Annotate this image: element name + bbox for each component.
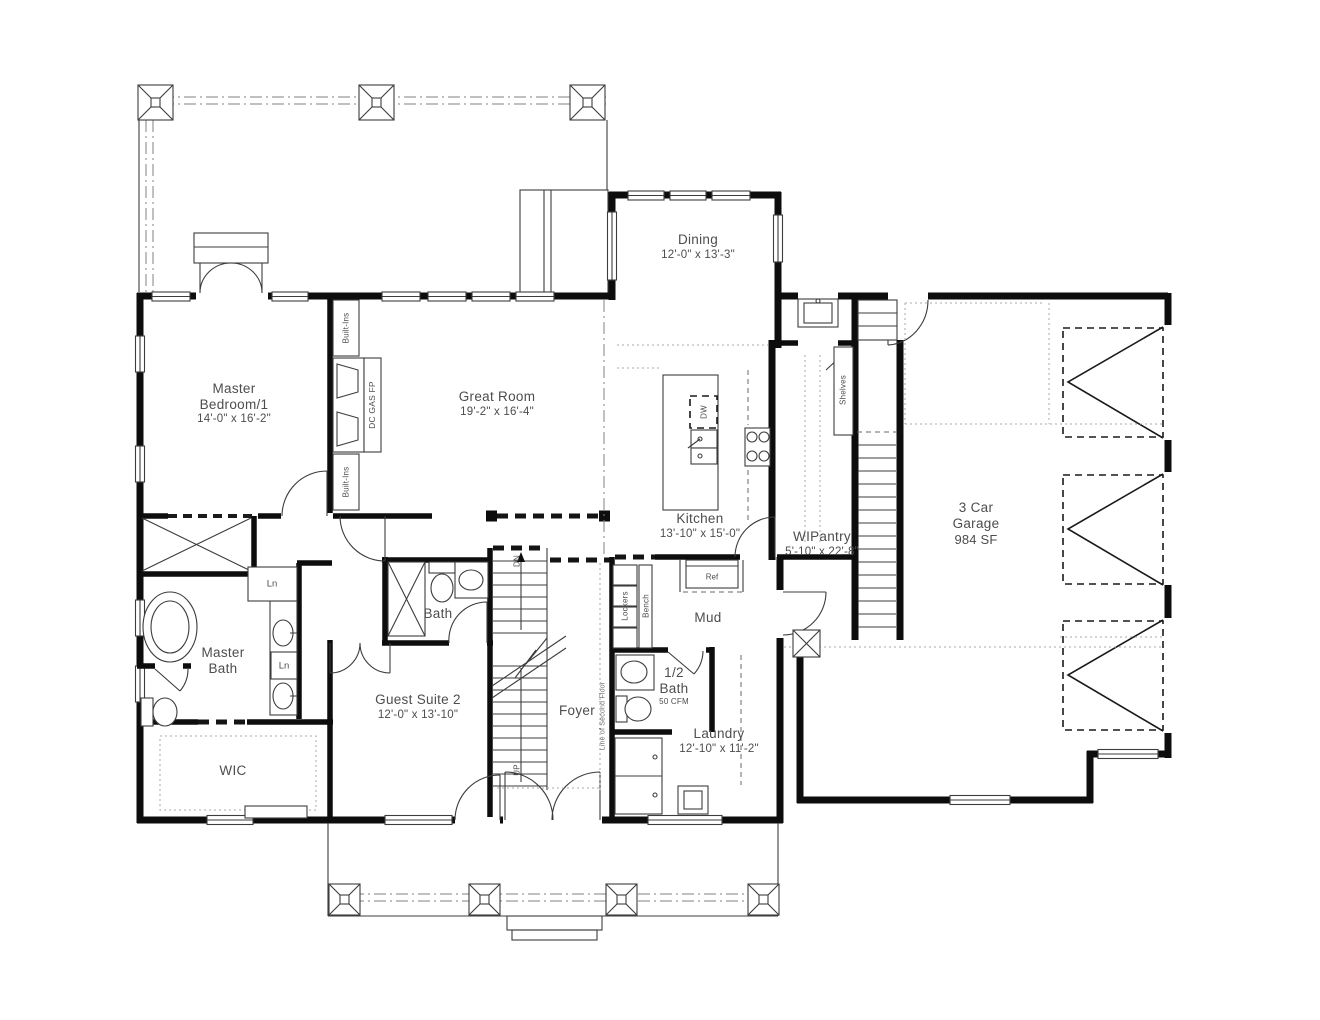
island-sink [688,430,717,464]
toilet [429,562,455,602]
room-label-garage: 3 Car Garage 984 SF [944,500,1008,547]
porch-chimney-structure [520,190,608,294]
window [628,191,664,200]
window [152,292,190,301]
master-patio-door [194,233,268,293]
window [428,292,466,301]
range-cooktop [745,428,770,466]
garage-overlay-lines [905,303,1163,637]
window [712,191,750,200]
butler-sink [798,299,838,327]
window [516,292,554,301]
room-dims: 14'-0" x 16'-2" [186,413,282,426]
room-dims: 19'-2" x 16'-4" [422,406,572,419]
room-label-half-bath: 1/2 Bath 50 CFM [653,665,695,707]
porch-column [469,884,500,915]
room-name: Kitchen [620,511,780,527]
sink [455,562,488,598]
room-dims: 5'-10" x 22'-8" [757,546,887,559]
front-porch [328,823,778,916]
porch-column [606,884,637,915]
window [648,816,722,825]
room-name: WIC [203,763,263,779]
room-label-master-bath: Master Bath [194,645,252,676]
window [472,292,510,301]
entry-door [455,772,600,820]
room-dims: 12'-0" x 13'-3" [618,249,778,262]
hall-shelving [858,300,897,340]
window [670,191,706,200]
porch-column [748,884,779,915]
shower [388,562,425,636]
room-label-great-room: Great Room 19'-2" x 16'-4" [422,389,572,419]
door-arc [330,643,390,673]
window [950,796,1010,805]
annotation-dishwasher: DW [700,405,709,419]
window [385,816,452,825]
annotation-lockers: Lockers [621,591,630,620]
porch-steps [507,916,602,940]
floor-plan-drawing [0,0,1320,1020]
room-name: 3 Car Garage [944,500,1008,531]
room-name: WIPantry [757,529,887,545]
room-note: 50 CFM [653,697,695,706]
garage-door [1063,474,1163,585]
sink [616,655,654,690]
window [136,336,145,372]
room-name: Master Bath [194,645,252,676]
vanity-sink [270,601,297,715]
window [1098,750,1158,759]
toilet [616,696,651,722]
annotation-built-ins: Built-Ins [342,467,351,498]
room-name: 1/2 Bath [653,665,695,696]
window [608,212,617,280]
room-label-kitchen: Kitchen 13'-10" x 15'-0" [620,511,780,541]
stoop-column [793,630,820,657]
porch-column [138,85,173,120]
room-name: Guest Suite 2 [358,692,478,708]
door-arc [155,668,188,691]
annotation-built-ins: Built-Ins [342,313,351,344]
room-dims: 13'-10" x 15'-0" [620,528,780,541]
room-label-master-bedroom: Master Bedroom/1 14'-0" x 16'-2" [186,381,282,427]
room-label-laundry: Laundry 12'-10" x 11'-2" [644,726,794,756]
room-label-dining: Dining 12'-0" x 13'-3" [618,232,778,262]
utility-sink [678,786,708,814]
room-name: Mud [673,610,743,626]
room-dims: 984 SF [944,532,1008,547]
annotation-linen: Ln [279,661,290,672]
kitchen-island [663,375,718,510]
floor-plan: Master Bedroom/1 14'-0" x 16'-2" Great R… [0,0,1320,1020]
annotation-stair-up: UP [513,764,522,776]
annotation-shelves: Shelves [839,375,848,405]
porch-column [329,884,360,915]
door-arc [282,471,327,516]
toilet [141,698,177,726]
room-name: Laundry [644,726,794,742]
room-dims: 12'-10" x 11'-2" [644,743,794,756]
room-label-bath: Bath [408,606,468,622]
shower [142,518,251,571]
annotation-refrigerator: Ref [706,573,718,582]
room-name: Master Bedroom/1 [186,381,282,412]
room-label-guest-suite: Guest Suite 2 12'-0" x 13'-10" [358,692,478,722]
door-arc [783,592,826,635]
garage-door [1063,620,1163,731]
window [382,292,420,301]
room-dims: 12'-0" x 13'-10" [358,709,478,722]
staircase [492,548,566,790]
room-name: Bath [408,606,468,622]
annotation-linen: Ln [267,579,278,590]
room-label-wipantry: WIPantry 5'-10" x 22'-8" [757,529,887,559]
room-label-mud: Mud [673,610,743,626]
annotation-fireplace: DC GAS FP [367,381,377,429]
room-name: Great Room [422,389,572,405]
garage-door [1063,327,1163,438]
post [486,511,497,522]
window [136,446,145,482]
room-label-wic: WIC [203,763,263,779]
porch-column [359,85,394,120]
annotation-bench: Bench [642,594,651,618]
window [272,292,308,301]
annotation-second-floor-line: Line of Second Floor [600,682,607,751]
bathtub [143,592,197,662]
window [136,666,145,702]
porch-column [570,85,605,120]
door-arc [340,516,385,561]
room-name: Dining [618,232,778,248]
annotation-stair-down: DN [513,555,522,567]
kitchen-open-edge [617,345,768,368]
